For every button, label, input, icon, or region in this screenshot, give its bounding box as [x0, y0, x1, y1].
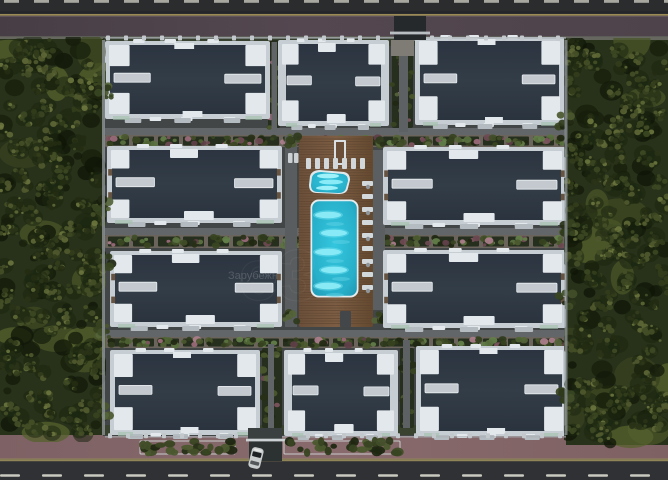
- svg-text:Зарубежн: Зарубежн: [228, 270, 278, 282]
